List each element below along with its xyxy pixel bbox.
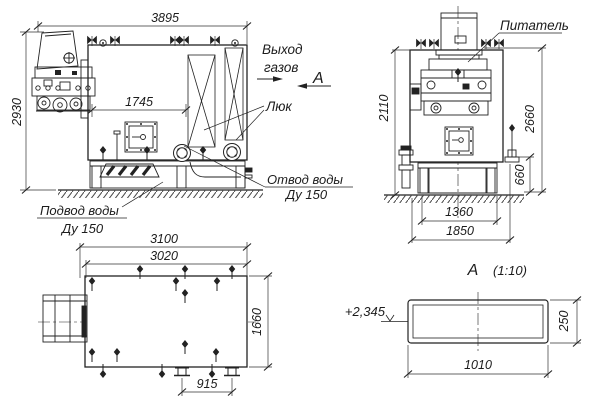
- base-frame-side: [90, 161, 252, 188]
- burner-assembly: [32, 31, 95, 112]
- base-frame-front: [418, 163, 497, 193]
- water-flange-front: [174, 145, 191, 162]
- pipe-flange-1: [174, 368, 190, 376]
- section-view: A (1:10) +2,345 250 1010: [345, 262, 581, 378]
- section-cut-mark: A: [297, 70, 331, 89]
- dim-top-depth: 1660: [250, 308, 264, 336]
- gas-outlet-label-1: Выход: [262, 42, 303, 57]
- water-outlet-label-1: Отвод воды: [267, 172, 343, 187]
- level-mark: +2,345: [345, 304, 408, 322]
- ground-side: [58, 190, 263, 198]
- side-view: 3895 2930 1745 Выход газов A Люк Отвод в…: [10, 11, 353, 236]
- water-outlet-label-2: Ду 150: [284, 187, 328, 202]
- section-mark-letter: A: [312, 70, 324, 87]
- dim-top-outer: 3100: [150, 232, 178, 246]
- dim-sect-len: 1010: [464, 358, 492, 372]
- right-pipe: [505, 124, 519, 162]
- water-inlet-label-2: Ду 150: [60, 221, 104, 236]
- burner-interface: [81, 60, 88, 118]
- boiler-body-top: [85, 276, 247, 367]
- section-title-scale: (1:10): [493, 263, 527, 278]
- boiler-drawing: 3895 2930 1745 Выход газов A Люк Отвод в…: [0, 0, 600, 400]
- ground-front: [384, 195, 524, 203]
- pipe-flange-2: [224, 368, 240, 376]
- dim-base-inner: 1360: [445, 205, 473, 219]
- section-title-letter: A: [467, 262, 479, 279]
- level-value: +2,345: [345, 304, 386, 319]
- dim-pipes: 915: [197, 377, 218, 391]
- section-cut-arrow: [297, 83, 307, 88]
- dim-front-base: 660: [513, 165, 527, 186]
- water-flange-rear: [224, 144, 241, 161]
- dim-side-width: 3895: [151, 11, 179, 25]
- gas-outlet-label-2: газов: [264, 60, 298, 75]
- feeder-label: Питатель: [500, 18, 569, 33]
- gas-direction-arrow: [273, 76, 283, 82]
- top-view: 3100 3020 1660 915: [38, 232, 272, 396]
- dim-sect-h: 250: [557, 311, 571, 333]
- front-view: 2110 2660 660 1360 1850 Питатель: [377, 6, 569, 244]
- hatch-label: Люк: [265, 99, 292, 114]
- dim-base-outer: 1850: [446, 224, 474, 238]
- dim-front-total: 2660: [523, 105, 537, 134]
- dim-front-height: 2110: [377, 95, 391, 123]
- hatch-door-front: [445, 127, 473, 155]
- dim-top-inner: 3020: [150, 249, 178, 263]
- drawing-canvas: 3895 2930 1745 Выход газов A Люк Отвод в…: [0, 0, 600, 400]
- section-dimensions: [404, 297, 581, 379]
- dim-side-inner: 1745: [125, 95, 153, 109]
- dim-side-height: 2930: [10, 98, 24, 127]
- gas-outlet-callout: Выход газов: [257, 42, 303, 82]
- water-inlet-label-1: Подвод воды: [40, 203, 119, 218]
- burner-top: [43, 295, 87, 342]
- boiler-body-side: [88, 45, 247, 160]
